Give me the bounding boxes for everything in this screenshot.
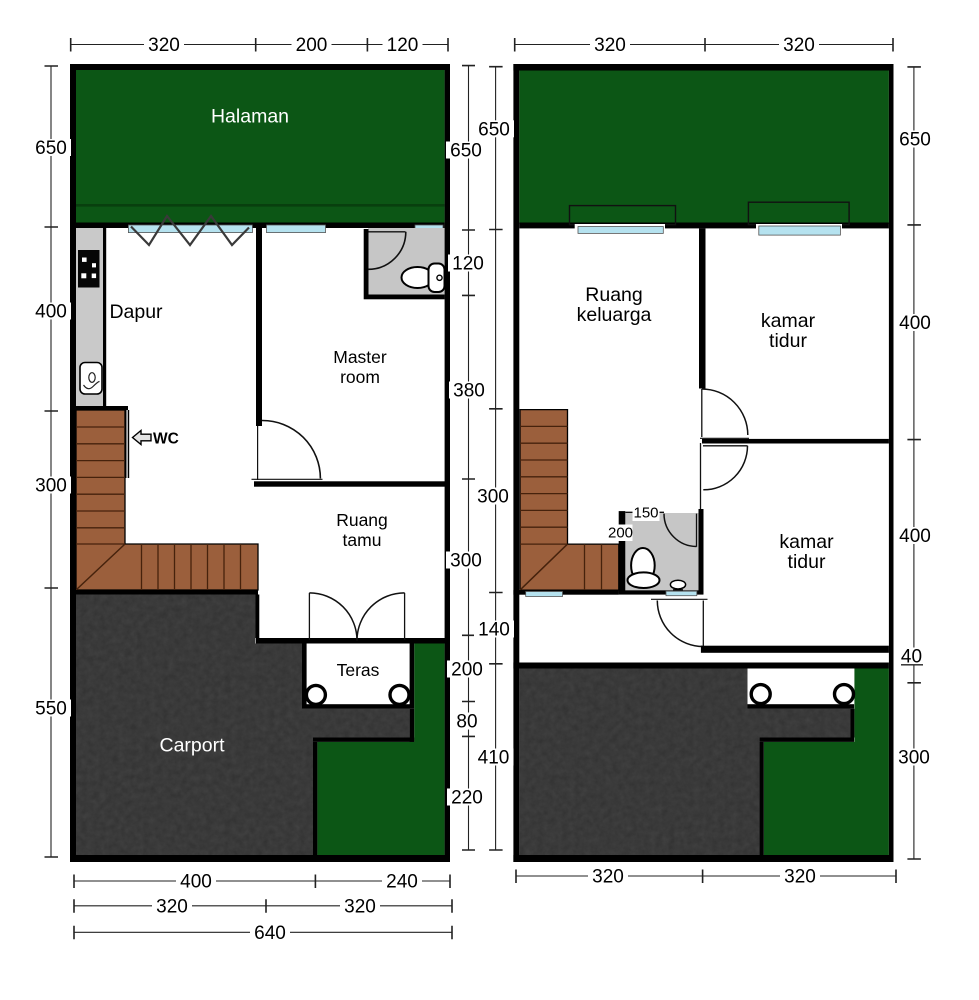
- svg-text:400: 400: [899, 313, 931, 334]
- svg-text:320: 320: [783, 35, 815, 56]
- svg-text:320: 320: [156, 896, 188, 917]
- svg-text:140: 140: [478, 620, 510, 641]
- svg-text:550: 550: [35, 699, 67, 720]
- svg-text:320: 320: [592, 867, 624, 888]
- svg-text:tidur: tidur: [788, 551, 826, 573]
- svg-text:150: 150: [633, 505, 658, 522]
- svg-text:Ruang: Ruang: [336, 510, 388, 530]
- svg-text:400: 400: [180, 872, 212, 893]
- svg-text:300: 300: [35, 476, 67, 497]
- svg-text:650: 650: [899, 130, 931, 151]
- svg-text:Carport: Carport: [159, 735, 225, 757]
- svg-text:240: 240: [386, 872, 418, 893]
- svg-text:400: 400: [899, 526, 931, 547]
- svg-text:400: 400: [35, 302, 67, 323]
- svg-text:410: 410: [478, 748, 510, 769]
- svg-text:120: 120: [452, 254, 484, 275]
- svg-text:650: 650: [450, 141, 482, 162]
- svg-text:tamu: tamu: [343, 530, 382, 550]
- svg-text:Dapur: Dapur: [109, 301, 163, 323]
- svg-text:kamar: kamar: [779, 531, 834, 553]
- svg-text:320: 320: [344, 896, 376, 917]
- svg-text:Teras: Teras: [337, 660, 380, 680]
- svg-text:tidur: tidur: [769, 330, 807, 352]
- svg-text:WC: WC: [153, 431, 179, 448]
- svg-text:200: 200: [451, 660, 483, 681]
- svg-text:200: 200: [608, 525, 633, 542]
- svg-text:320: 320: [594, 35, 626, 56]
- svg-text:300: 300: [450, 551, 482, 572]
- svg-text:640: 640: [254, 923, 286, 944]
- svg-text:keluarga: keluarga: [577, 304, 652, 326]
- svg-text:room: room: [340, 367, 380, 387]
- svg-text:380: 380: [453, 381, 485, 402]
- svg-text:80: 80: [456, 712, 477, 733]
- svg-text:320: 320: [784, 867, 816, 888]
- svg-text:220: 220: [451, 788, 483, 809]
- svg-text:200: 200: [296, 35, 328, 56]
- svg-text:650: 650: [478, 119, 510, 140]
- svg-text:Ruang: Ruang: [585, 284, 642, 306]
- svg-text:kamar: kamar: [761, 310, 816, 332]
- svg-text:Halaman: Halaman: [211, 106, 289, 128]
- svg-text:320: 320: [148, 35, 180, 56]
- svg-text:300: 300: [477, 487, 509, 508]
- svg-text:120: 120: [387, 35, 419, 56]
- svg-text:650: 650: [35, 138, 67, 159]
- svg-text:Master: Master: [333, 347, 387, 367]
- svg-text:300: 300: [898, 748, 930, 769]
